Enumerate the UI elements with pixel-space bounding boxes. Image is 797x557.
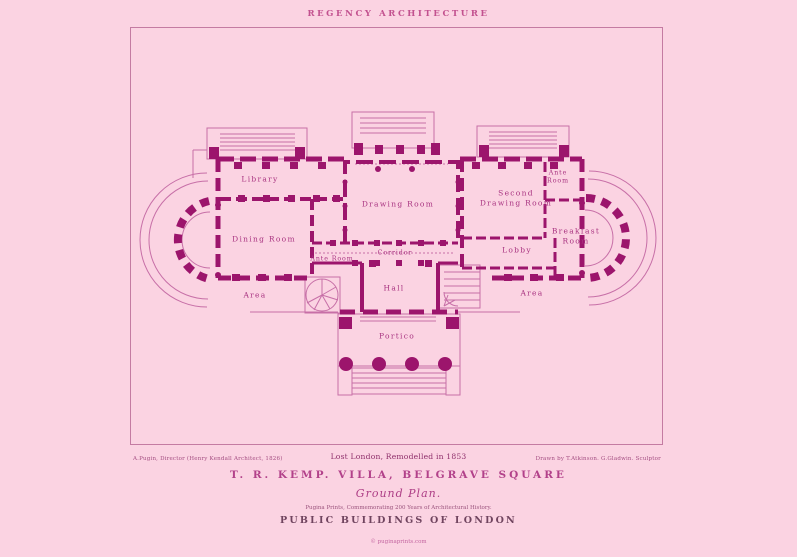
room-label-breakfast-room: Breakfast Room [552, 228, 600, 245]
series-title: PUBLIC BUILDINGS OF LONDON [0, 515, 797, 526]
publisher-note: Pugina Prints, Commemorating 200 Years o… [0, 505, 797, 511]
room-label-second-drawing-room: Second Drawing Room [480, 190, 552, 207]
room-label-corridor: Corridor [378, 250, 413, 257]
credit-engraver: Drawn by T.Atkinson. G.Gladwin. Sculptor [536, 456, 661, 462]
copyright-line: © puginaprints.com [0, 539, 797, 545]
room-label-ante-room-right: Ante Room [547, 171, 569, 186]
room-label-line: Drawing Room [480, 199, 552, 207]
portico-pier [446, 317, 459, 329]
room-label-area-right: Area [520, 289, 543, 298]
room-label-line: Room [547, 179, 569, 185]
room-label-area-left: Area [243, 291, 266, 300]
room-label-line: Breakfast [552, 228, 600, 236]
room-label-line: Ante [549, 171, 567, 177]
room-label-lobby: Lobby [502, 246, 532, 255]
room-label-drawing-room: Drawing Room [362, 200, 434, 209]
room-label-portico: Portico [379, 332, 415, 341]
portico-column [405, 357, 419, 371]
portico-column [438, 357, 452, 371]
room-label-library: Library [241, 175, 278, 184]
portico-pier [339, 317, 352, 329]
room-label-line: Room [563, 237, 590, 245]
portico-column [372, 357, 386, 371]
print-canvas: REGENCY ARCHITECTURE [0, 0, 797, 557]
portico-column [339, 357, 353, 371]
plan-type-label: Ground Plan. [0, 487, 797, 500]
room-label-dining-room: Dining Room [232, 235, 296, 244]
room-label-ante-room-left: Ante Room [310, 256, 353, 263]
plate-caption: Lost London, Remodelled in 1853 [0, 452, 797, 461]
plate-title: T. R. KEMP. VILLA, BELGRAVE SQUARE [0, 469, 797, 481]
room-label-hall: Hall [383, 284, 404, 293]
room-label-line: Second [498, 190, 534, 198]
